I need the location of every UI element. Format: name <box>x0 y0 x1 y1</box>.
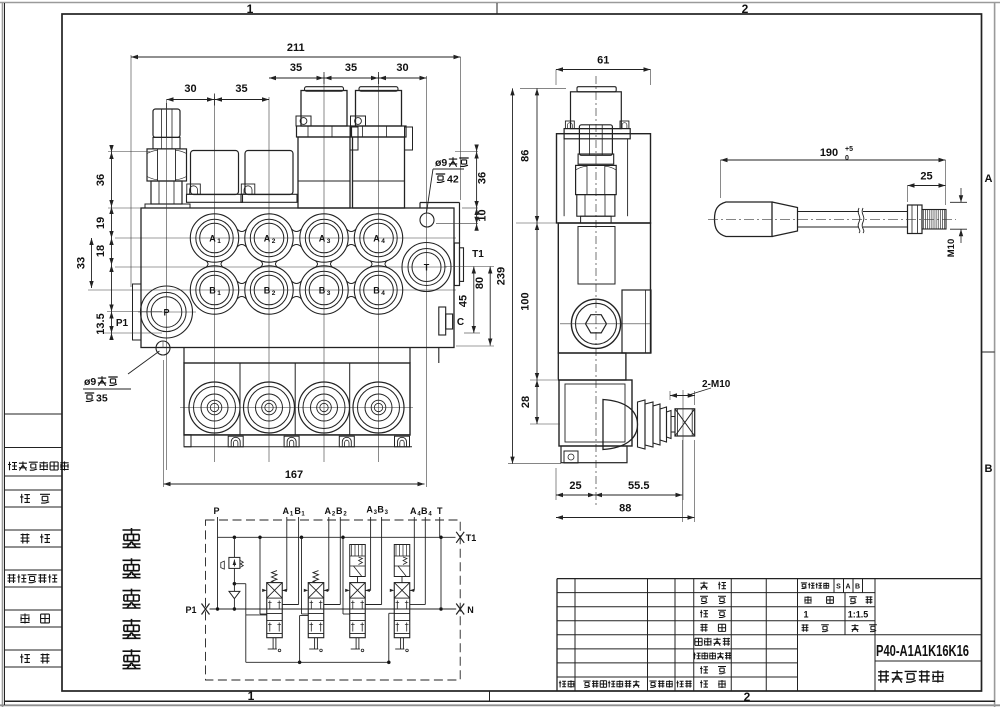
svg-text:S: S <box>836 584 841 591</box>
svg-text:A: A <box>366 505 373 515</box>
svg-text:P1: P1 <box>185 605 196 615</box>
svg-text:211: 211 <box>287 42 305 54</box>
svg-text:B: B <box>985 463 993 475</box>
svg-text:13.5: 13.5 <box>95 313 107 334</box>
svg-text:B: B <box>294 506 301 516</box>
svg-text:1: 1 <box>248 689 255 703</box>
svg-text:1: 1 <box>217 238 221 245</box>
svg-text:18: 18 <box>95 245 107 257</box>
svg-text:M10: M10 <box>946 239 957 257</box>
svg-text:25: 25 <box>569 480 581 492</box>
svg-text:B: B <box>855 584 860 591</box>
svg-text:1: 1 <box>217 290 221 297</box>
svg-text:N: N <box>467 605 474 615</box>
svg-text:A: A <box>845 584 850 591</box>
svg-text:55.5: 55.5 <box>628 480 649 492</box>
svg-text:ø9: ø9 <box>84 376 96 388</box>
svg-text:P1: P1 <box>116 318 129 329</box>
svg-text:A: A <box>283 506 290 516</box>
svg-text:35: 35 <box>235 83 247 95</box>
svg-text:0: 0 <box>845 155 849 162</box>
svg-text:10: 10 <box>477 209 489 221</box>
svg-text:B: B <box>264 286 271 296</box>
svg-text:2: 2 <box>272 238 276 245</box>
svg-text:A: A <box>373 234 380 244</box>
svg-text:4: 4 <box>381 290 385 297</box>
svg-text:45: 45 <box>458 295 470 307</box>
svg-text:+5: +5 <box>845 146 853 153</box>
svg-text:19: 19 <box>95 217 107 229</box>
svg-text:30: 30 <box>396 62 408 74</box>
svg-text:35: 35 <box>290 62 302 74</box>
svg-text:35: 35 <box>96 393 108 405</box>
svg-text:B: B <box>377 505 384 515</box>
svg-text:A: A <box>325 506 332 516</box>
svg-text:88: 88 <box>619 503 631 515</box>
svg-text:B: B <box>319 286 326 296</box>
svg-text:28: 28 <box>520 396 532 408</box>
svg-text:42: 42 <box>447 174 459 186</box>
svg-text:33: 33 <box>76 257 88 269</box>
svg-text:B: B <box>336 506 343 516</box>
svg-text:61: 61 <box>597 55 609 67</box>
svg-text:T1: T1 <box>466 533 477 543</box>
svg-text:4: 4 <box>381 238 385 245</box>
svg-text:A: A <box>264 234 271 244</box>
svg-text:2: 2 <box>742 2 749 16</box>
svg-text:35: 35 <box>345 62 357 74</box>
svg-text:86: 86 <box>520 150 532 162</box>
svg-text:T: T <box>424 263 430 273</box>
svg-text:3: 3 <box>327 238 331 245</box>
svg-text:30: 30 <box>184 83 196 95</box>
svg-text:25: 25 <box>920 171 932 183</box>
svg-text:2: 2 <box>272 290 276 297</box>
svg-text:T1: T1 <box>472 249 484 260</box>
svg-text:1: 1 <box>247 2 254 16</box>
svg-text:190: 190 <box>820 147 838 159</box>
svg-text:A: A <box>319 234 326 244</box>
svg-text:B: B <box>209 286 216 296</box>
svg-text:2-M10: 2-M10 <box>702 379 731 390</box>
svg-text:36: 36 <box>477 172 489 184</box>
svg-text:A: A <box>985 173 993 185</box>
svg-text:100: 100 <box>520 292 532 310</box>
svg-text:ø9: ø9 <box>435 157 447 169</box>
svg-text:P: P <box>163 308 169 318</box>
svg-text:P: P <box>213 506 219 516</box>
svg-text:3: 3 <box>327 290 331 297</box>
svg-text:167: 167 <box>285 469 303 481</box>
svg-text:2: 2 <box>744 690 751 704</box>
svg-text:A: A <box>209 234 216 244</box>
svg-text:C: C <box>457 317 464 328</box>
svg-text:1:1.5: 1:1.5 <box>848 610 869 620</box>
svg-text:B: B <box>373 286 380 296</box>
svg-text:T: T <box>437 506 443 516</box>
svg-text:239: 239 <box>496 267 508 285</box>
svg-text:B: B <box>421 506 428 516</box>
svg-text:1: 1 <box>803 610 808 620</box>
svg-text:P40-A1A1K16K16: P40-A1A1K16K16 <box>876 643 969 660</box>
svg-text:36: 36 <box>95 174 107 186</box>
svg-text:80: 80 <box>474 277 486 289</box>
svg-text:A: A <box>410 506 417 516</box>
